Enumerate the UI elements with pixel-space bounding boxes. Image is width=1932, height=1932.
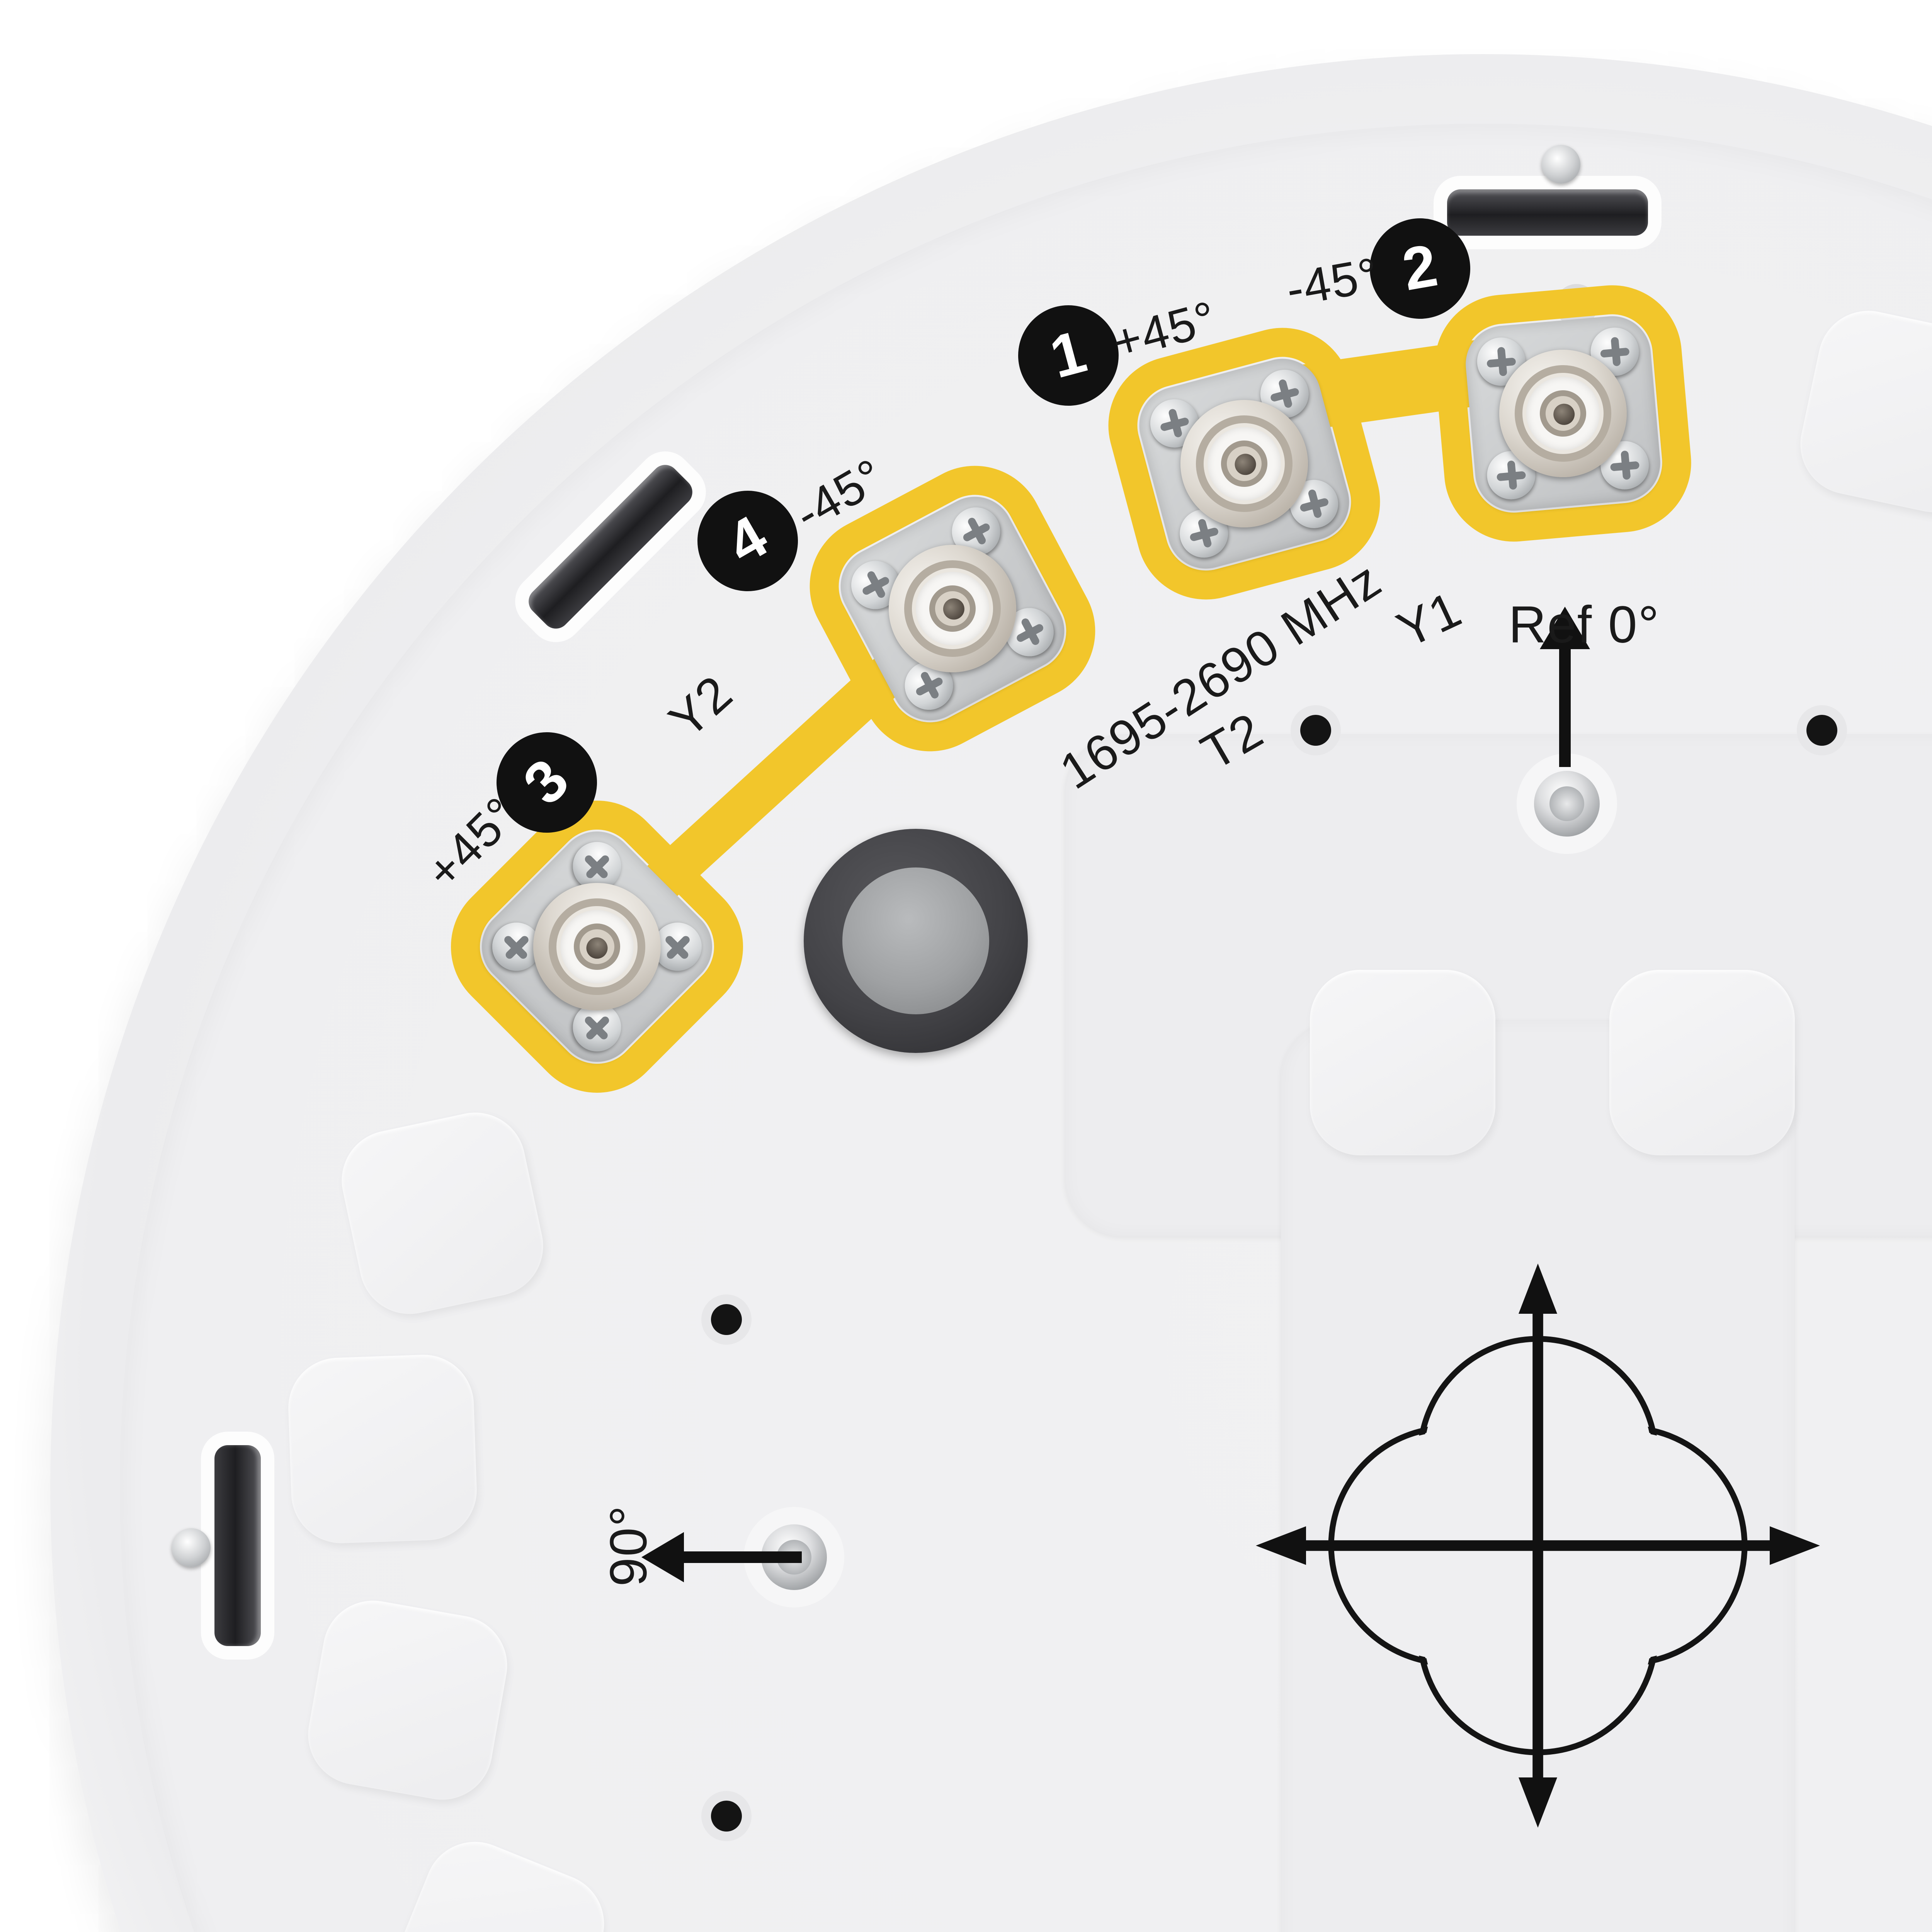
edge-screw-icon xyxy=(1542,145,1580,184)
antenna-bottom-panel: 1+45°2-45°3+45°4-45°5+45°6-45°7+45°8-45°… xyxy=(0,0,1932,1932)
emboss-bump xyxy=(1310,970,1495,1155)
index-dot xyxy=(711,1304,742,1335)
index-dot xyxy=(1300,715,1331,746)
quatrefoil-crosshair-icon xyxy=(1248,1256,1828,1835)
emboss-bump xyxy=(300,1593,515,1808)
ref-0-label: Ref 0° xyxy=(1509,596,1660,656)
ref-0-arrow-icon xyxy=(1559,647,1571,767)
radome-disc: 1+45°2-45°3+45°4-45°5+45°6-45°7+45°8-45°… xyxy=(50,54,1932,1932)
mounting-slot xyxy=(1447,189,1648,236)
deg90-arrow-icon xyxy=(682,1551,802,1563)
index-dot xyxy=(711,1801,742,1832)
emboss-bump xyxy=(287,1353,478,1545)
index-dot xyxy=(1806,715,1837,746)
torx-screw-icon xyxy=(1534,771,1600,837)
mounting-foot xyxy=(804,829,1028,1053)
edge-screw-icon xyxy=(172,1528,211,1567)
mounting-slot xyxy=(214,1445,261,1646)
deg90-label: 90° xyxy=(600,1505,660,1587)
emboss-bump xyxy=(1609,970,1795,1155)
